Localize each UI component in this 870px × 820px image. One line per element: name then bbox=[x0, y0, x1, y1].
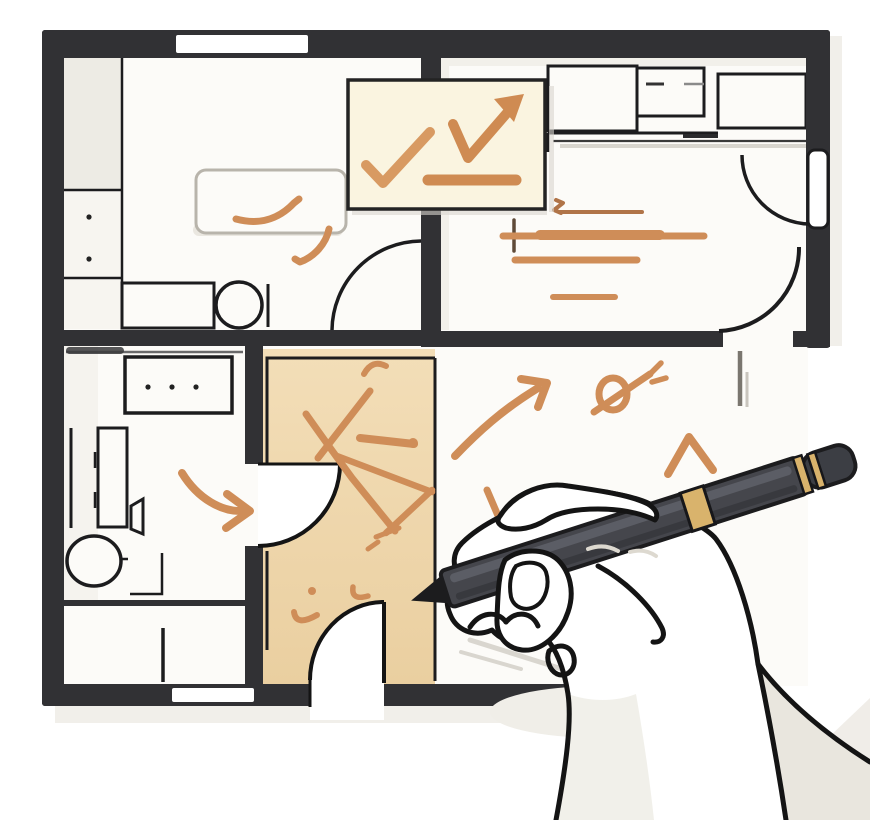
note-shadow-right bbox=[549, 86, 554, 212]
hallway-dot bbox=[308, 587, 316, 595]
spiral-doodle-tick-2 bbox=[652, 378, 666, 382]
wall-smudge bbox=[66, 347, 124, 354]
wall-bath-upper bbox=[245, 346, 263, 464]
kitchen-table bbox=[196, 170, 346, 233]
window-top bbox=[176, 35, 308, 53]
vanity-knob-3 bbox=[193, 384, 198, 389]
wall-bath-lower bbox=[245, 546, 263, 686]
toilet-bowl bbox=[67, 536, 121, 586]
cabinet-knob-2 bbox=[86, 256, 91, 261]
thumbnail bbox=[510, 563, 547, 609]
hallway-dash-blob bbox=[408, 438, 418, 448]
wall-mid-left bbox=[42, 330, 441, 346]
floor-plan-illustration bbox=[0, 0, 870, 820]
kitchen-counter-top-segment bbox=[64, 57, 122, 190]
tall-cabinet bbox=[98, 428, 127, 527]
small-door-panel bbox=[131, 499, 143, 534]
window-bottom bbox=[172, 688, 254, 702]
kitchen-lower-counter bbox=[122, 283, 214, 328]
wall-left bbox=[42, 30, 64, 706]
dresser bbox=[718, 74, 806, 128]
vanity-knob-1 bbox=[145, 384, 150, 389]
right-wall-shadow bbox=[830, 36, 842, 346]
nightstand bbox=[637, 68, 704, 116]
wardrobe bbox=[548, 66, 637, 131]
illustration-canvas bbox=[0, 0, 870, 820]
vanity-knob-2 bbox=[169, 384, 174, 389]
cabinet-knob-1 bbox=[86, 214, 91, 219]
sticky-note bbox=[348, 80, 554, 215]
vanity bbox=[125, 357, 232, 413]
bedroom-right-door-leaf bbox=[808, 150, 828, 228]
wall-corner-piece bbox=[793, 331, 830, 347]
sink-circle bbox=[216, 282, 262, 328]
wall-mid-right bbox=[421, 331, 723, 347]
